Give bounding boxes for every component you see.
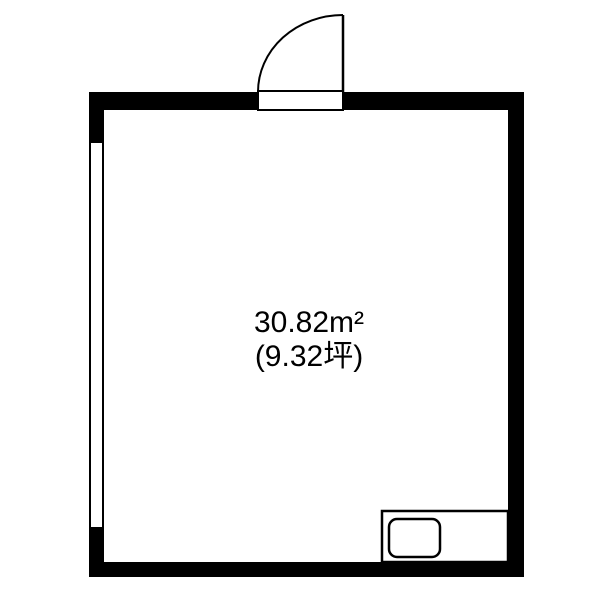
floorplan: 30.82m² (9.32坪)	[0, 0, 600, 600]
wall-top-right-segment	[343, 92, 524, 110]
floorplan-canvas: 30.82m² (9.32坪)	[0, 0, 600, 600]
area-sqm-label: 30.82m²	[254, 306, 364, 339]
area-tsubo-label: (9.32坪)	[255, 340, 363, 373]
wall-top-left-segment	[89, 92, 258, 110]
wall-left-top-segment	[89, 92, 104, 142]
wall-right	[508, 92, 524, 577]
wall-left-bottom-segment	[89, 528, 104, 577]
room-label: 30.82m² (9.32坪)	[254, 306, 364, 373]
window-icon	[90, 142, 103, 528]
wall-bottom	[89, 562, 524, 577]
door-swing-icon	[258, 15, 343, 92]
door-arc	[258, 15, 343, 92]
door-threshold	[258, 91, 343, 110]
